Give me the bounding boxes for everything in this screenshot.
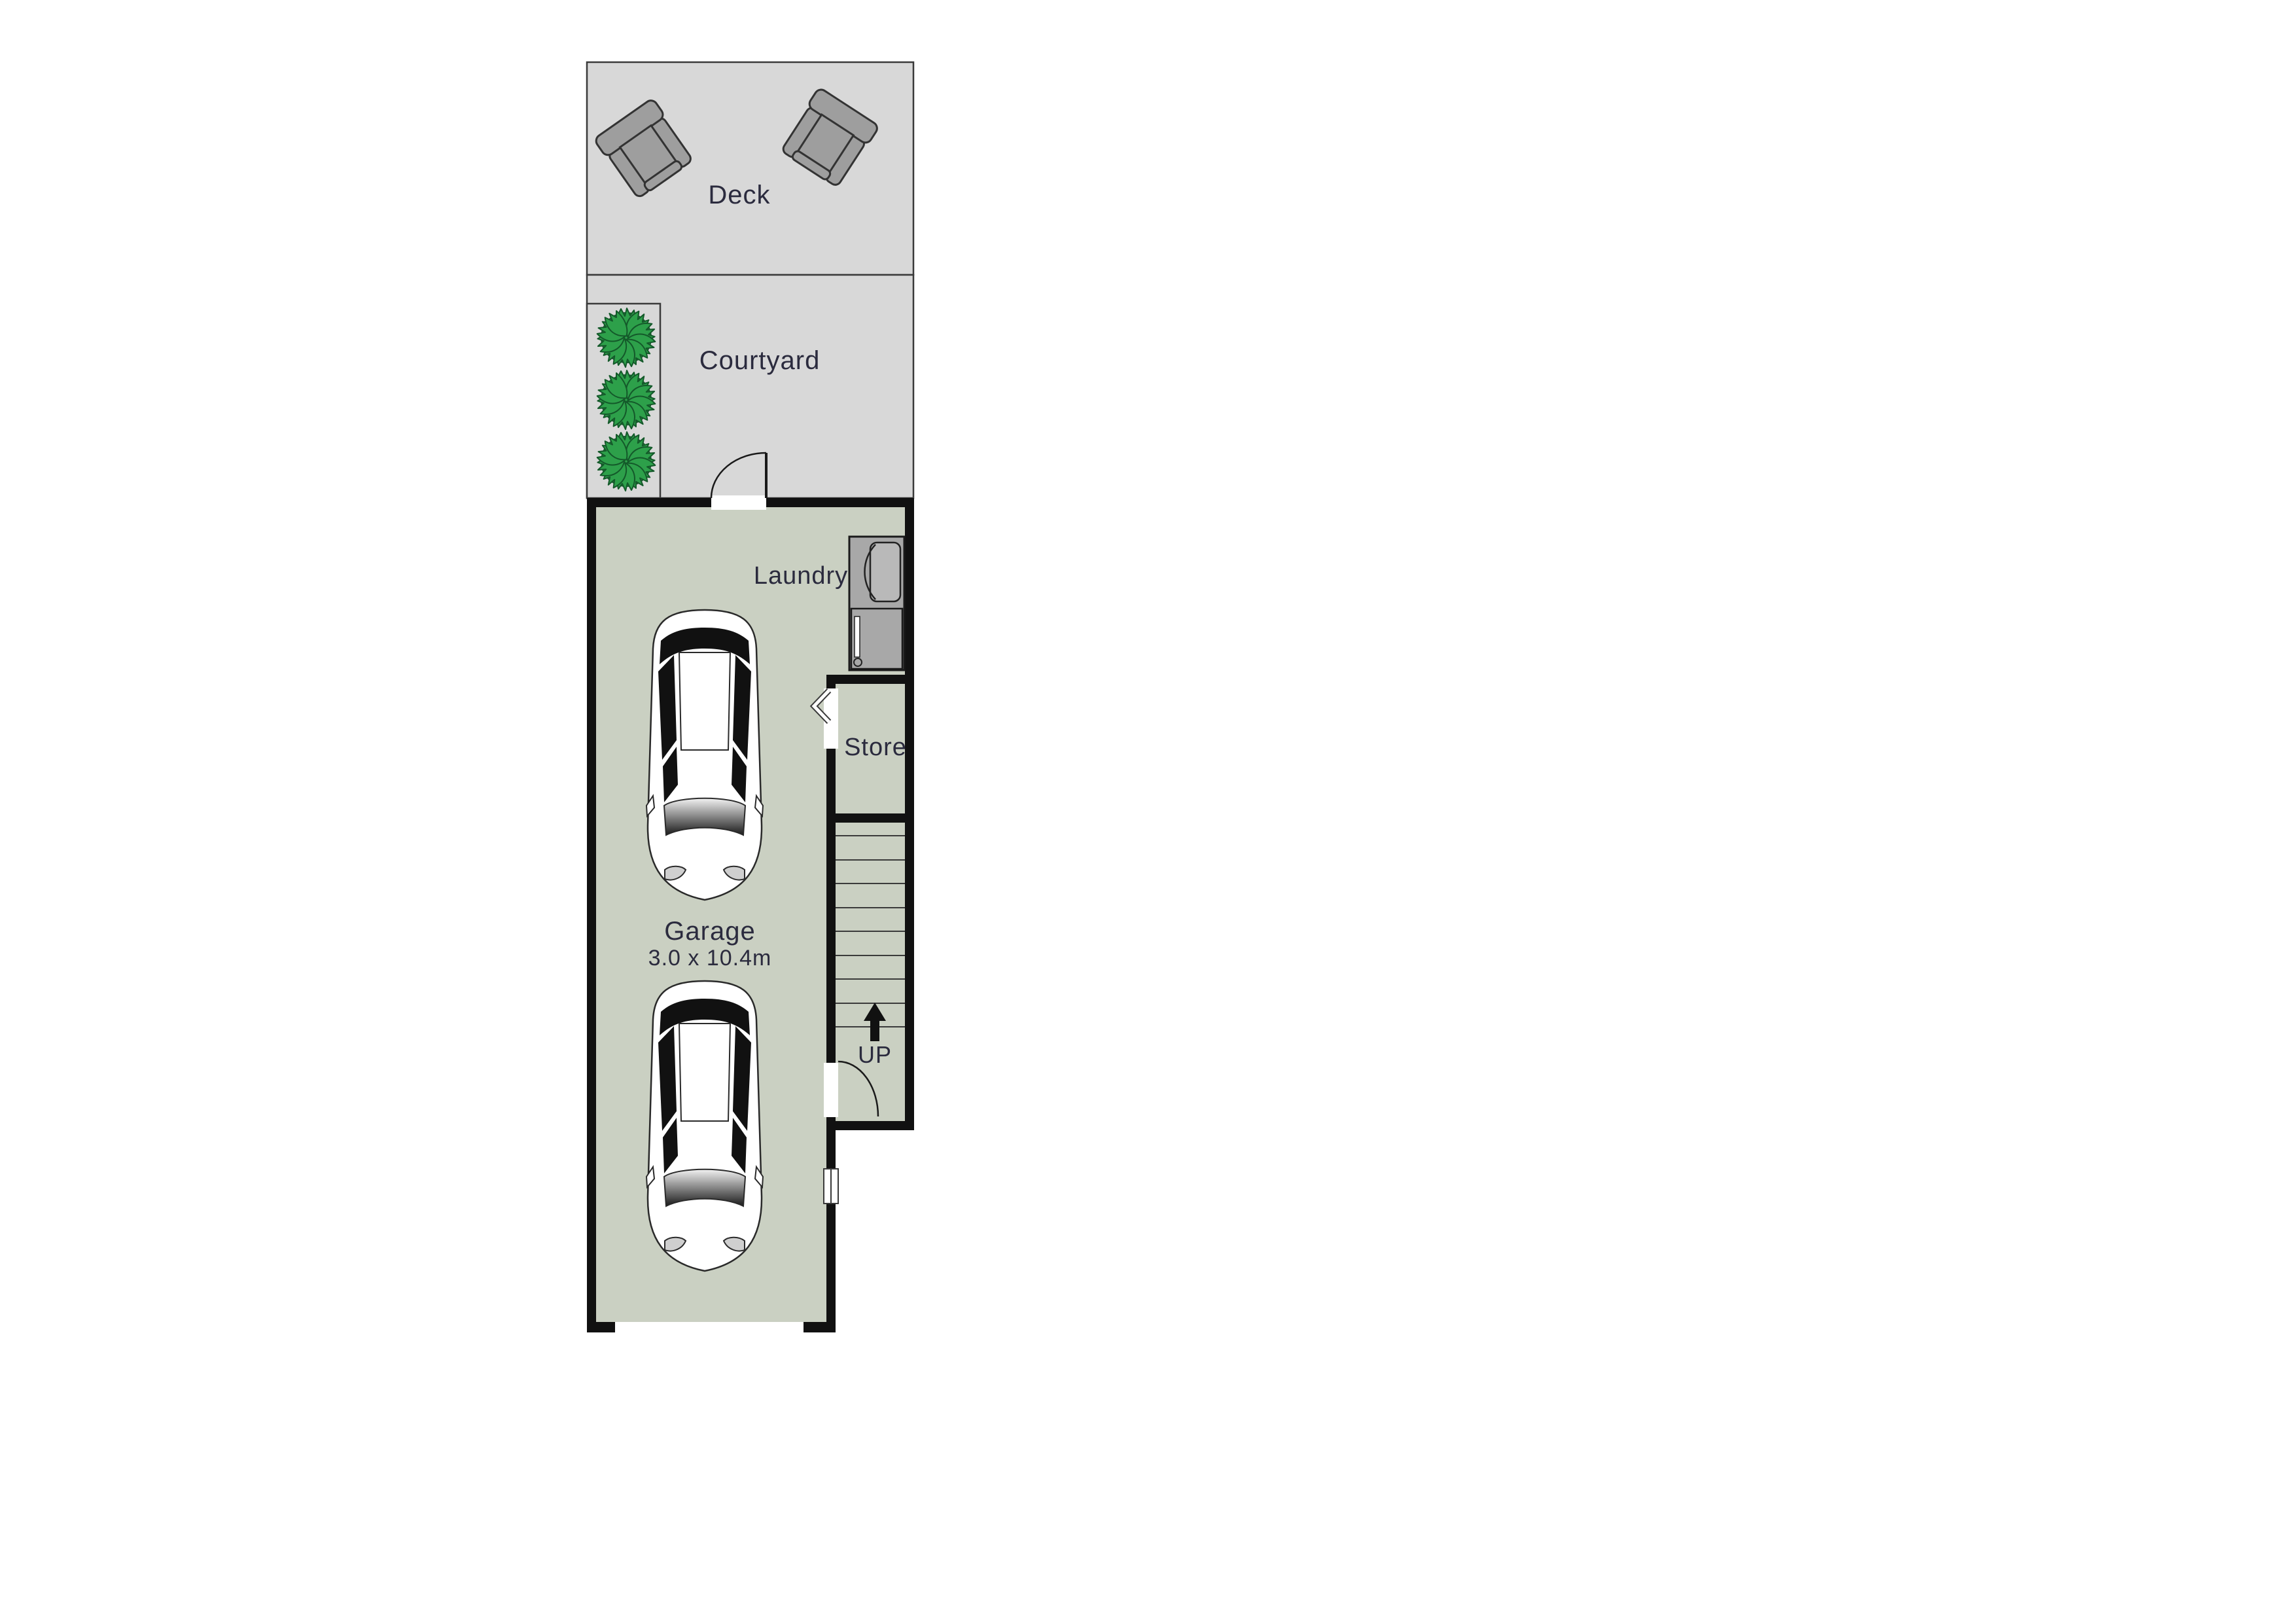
svg-text:Store: Store (844, 734, 907, 761)
svg-text:Garage: Garage (664, 917, 755, 946)
svg-text:Deck: Deck (708, 181, 770, 209)
svg-text:Courtyard: Courtyard (699, 346, 821, 375)
svg-text:3.0 x 10.4m: 3.0 x 10.4m (648, 946, 772, 971)
svg-text:UP: UP (858, 1041, 892, 1068)
svg-text:Laundry: Laundry (754, 562, 848, 590)
